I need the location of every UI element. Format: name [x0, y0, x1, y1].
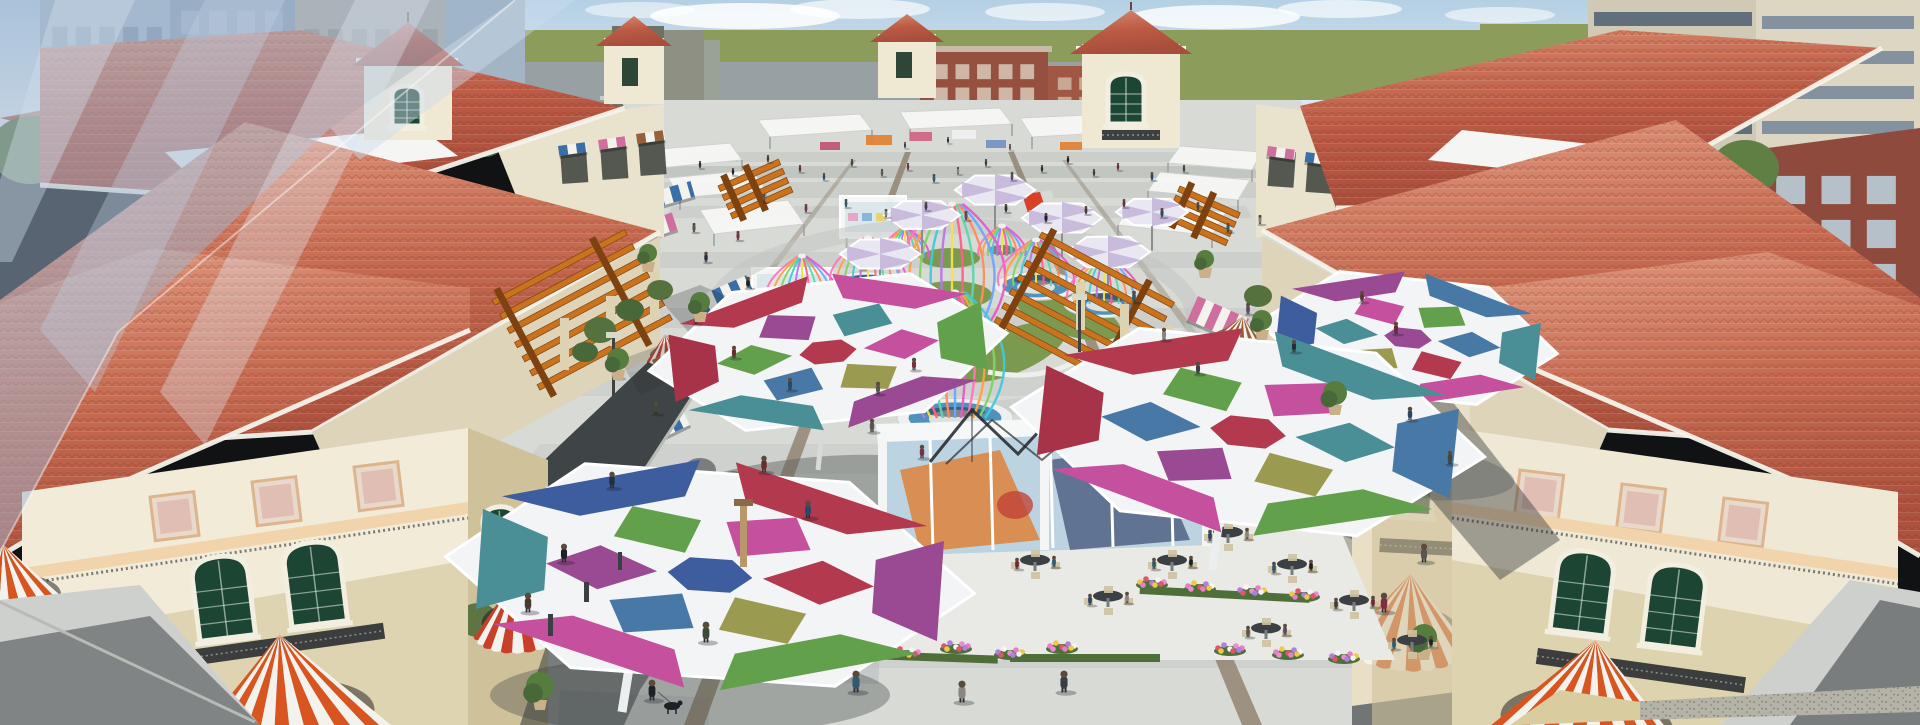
cloud — [1445, 7, 1555, 23]
hedge — [1010, 654, 1160, 662]
decor-panel — [1617, 484, 1666, 533]
pavilion-mural — [997, 491, 1033, 519]
terrace-plant — [616, 299, 644, 321]
cloud — [985, 3, 1105, 21]
terrace-plant — [572, 342, 598, 362]
market-stall — [866, 135, 892, 145]
market-stall — [986, 140, 1006, 148]
market-stall — [910, 132, 932, 141]
bollard — [548, 614, 553, 636]
cloud — [1130, 5, 1300, 29]
brick-cornice — [916, 46, 1052, 52]
pergola-post — [560, 318, 569, 370]
bollard — [584, 582, 589, 602]
market-stall — [952, 130, 976, 139]
terrace-plant — [584, 317, 616, 343]
decor-panel — [150, 492, 199, 541]
market-stall — [820, 142, 840, 150]
plaza-steps — [678, 152, 1242, 162]
scene-root — [0, 0, 1920, 725]
tower-window — [622, 58, 638, 86]
tower-window — [1103, 74, 1149, 129]
decor-panel — [252, 477, 301, 526]
market-stall — [1060, 142, 1082, 150]
cloud — [585, 2, 695, 18]
architectural-render — [0, 0, 1920, 725]
decor-panel — [354, 462, 403, 511]
decor-panel — [1719, 498, 1768, 547]
cloud — [1278, 0, 1402, 18]
tower-window — [896, 52, 912, 78]
bollard — [618, 552, 622, 570]
tower-balcony — [1102, 130, 1160, 140]
plaza-scene — [0, 0, 1920, 725]
